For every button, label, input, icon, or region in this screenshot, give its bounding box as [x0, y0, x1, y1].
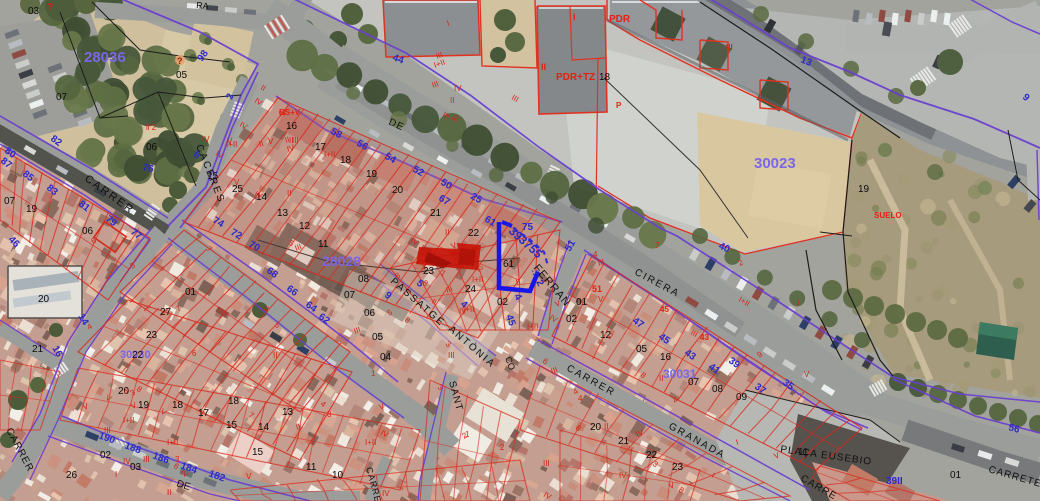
svg-text:20: 20 — [590, 422, 602, 433]
svg-text:08: 08 — [712, 384, 724, 395]
svg-text:21: 21 — [430, 208, 442, 219]
svg-text:1: 1 — [465, 430, 470, 439]
svg-text:13: 13 — [282, 407, 294, 418]
svg-text:I: I — [115, 470, 117, 479]
svg-text:01: 01 — [185, 287, 197, 298]
svg-text:10: 10 — [332, 470, 344, 481]
svg-text:I+II: I+II — [365, 438, 376, 447]
svg-text:V: V — [598, 295, 604, 304]
svg-text:4: 4 — [578, 394, 583, 403]
svg-text:05: 05 — [176, 70, 188, 81]
svg-text:V: V — [804, 370, 810, 379]
svg-text:II: II — [450, 96, 454, 105]
svg-text:4: 4 — [593, 250, 598, 259]
svg-text:61: 61 — [503, 259, 515, 270]
svg-text:15: 15 — [252, 447, 264, 458]
svg-text:IV: IV — [123, 457, 131, 466]
svg-text:21: 21 — [32, 344, 44, 355]
svg-text:26: 26 — [66, 470, 78, 481]
svg-text:11: 11 — [318, 239, 329, 250]
svg-text:18: 18 — [599, 72, 611, 83]
svg-text:06: 06 — [364, 308, 376, 319]
svg-text:1: 1 — [371, 369, 376, 378]
svg-text:28036: 28036 — [84, 49, 126, 66]
svg-text:IV: IV — [454, 84, 462, 93]
svg-text:6: 6 — [192, 349, 197, 358]
svg-text:17: 17 — [198, 408, 210, 419]
svg-text:01: 01 — [950, 470, 962, 481]
svg-text:05: 05 — [636, 344, 648, 355]
svg-text:13: 13 — [277, 208, 289, 219]
svg-text:16: 16 — [286, 121, 298, 132]
svg-text:3: 3 — [175, 455, 180, 464]
svg-text:IV: IV — [619, 471, 627, 480]
svg-text:19: 19 — [366, 169, 378, 180]
svg-text:06: 06 — [146, 142, 158, 153]
svg-text:V: V — [246, 472, 252, 481]
svg-text:V: V — [268, 137, 274, 146]
svg-text:I: I — [573, 12, 576, 22]
svg-text:8: 8 — [327, 410, 332, 419]
svg-text:II: II — [445, 228, 449, 237]
svg-text:03: 03 — [130, 462, 142, 473]
svg-text:20: 20 — [392, 185, 404, 196]
svg-text:I: I — [797, 299, 799, 308]
svg-text:I+II: I+II — [324, 150, 335, 159]
svg-text:IV: IV — [382, 489, 390, 498]
svg-text:11: 11 — [306, 462, 317, 473]
svg-text:04: 04 — [380, 352, 392, 363]
svg-text:III: III — [104, 426, 111, 435]
svg-text:07: 07 — [4, 196, 16, 207]
svg-text:23: 23 — [146, 330, 158, 341]
svg-text:?: ? — [47, 2, 53, 13]
svg-text:24: 24 — [465, 284, 477, 295]
svg-text:06: 06 — [82, 226, 94, 237]
svg-text:02: 02 — [566, 314, 578, 325]
svg-text:07: 07 — [56, 92, 68, 103]
svg-text:II: II — [604, 422, 608, 431]
svg-text:I+II: I+II — [463, 305, 474, 314]
svg-text:7: 7 — [655, 241, 660, 250]
svg-text:II: II — [659, 374, 663, 383]
svg-text:II: II — [167, 488, 171, 497]
svg-text:07: 07 — [688, 377, 700, 388]
svg-text:07: 07 — [344, 290, 356, 301]
svg-text:II: II — [273, 351, 277, 360]
svg-text:II: II — [287, 189, 291, 198]
svg-text:I+II: I+II — [527, 322, 538, 331]
svg-text:19: 19 — [858, 184, 870, 195]
svg-text:III: III — [543, 459, 550, 468]
svg-text:03: 03 — [28, 6, 40, 17]
svg-text:08: 08 — [358, 274, 370, 285]
svg-text:14: 14 — [258, 422, 270, 433]
svg-text:2: 2 — [500, 443, 505, 452]
svg-text:III: III — [726, 43, 733, 52]
svg-text:02: 02 — [497, 297, 509, 308]
svg-text:19: 19 — [138, 400, 150, 411]
svg-text:IV: IV — [202, 135, 210, 144]
svg-text:V: V — [227, 137, 233, 146]
svg-text:?: ? — [177, 56, 183, 66]
svg-text:22: 22 — [468, 228, 480, 239]
svg-text:39II: 39II — [886, 476, 903, 487]
svg-text:20: 20 — [38, 294, 50, 305]
svg-text:09: 09 — [736, 392, 748, 403]
svg-text:SUELO: SUELO — [874, 211, 902, 220]
svg-text:18: 18 — [228, 396, 240, 407]
svg-text:11: 11 — [798, 447, 809, 458]
svg-text:15: 15 — [207, 171, 219, 182]
svg-text:28028: 28028 — [322, 253, 361, 269]
svg-text:45: 45 — [660, 305, 669, 314]
svg-text:PDR+TZ: PDR+TZ — [556, 72, 595, 83]
svg-text:27: 27 — [160, 307, 172, 318]
svg-text:21: 21 — [618, 436, 630, 447]
svg-text:01: 01 — [576, 297, 588, 308]
svg-text:30023: 30023 — [754, 155, 796, 172]
svg-text:19: 19 — [26, 204, 38, 215]
svg-text:12: 12 — [299, 221, 311, 232]
svg-text:P: P — [616, 101, 622, 110]
svg-text:18: 18 — [340, 155, 352, 166]
svg-text:PDR: PDR — [609, 14, 631, 25]
svg-text:III: III — [448, 351, 455, 360]
svg-text:02: 02 — [100, 450, 112, 461]
svg-text:I+II: I+II — [167, 438, 178, 447]
svg-text:23: 23 — [672, 462, 684, 473]
svg-text:V: V — [234, 178, 240, 187]
svg-text:ll 2: ll 2 — [146, 123, 157, 132]
svg-text:III: III — [143, 455, 150, 464]
svg-text:51: 51 — [592, 284, 602, 294]
svg-text:43: 43 — [700, 333, 709, 342]
svg-text:RA: RA — [196, 0, 209, 11]
svg-text:05: 05 — [372, 332, 384, 343]
svg-text:18: 18 — [172, 400, 184, 411]
svg-text:16: 16 — [660, 352, 672, 363]
svg-text:22: 22 — [132, 350, 144, 361]
svg-text:I+II: I+II — [472, 275, 483, 284]
svg-text:II: II — [541, 62, 546, 72]
svg-text:I+II: I+II — [123, 416, 134, 425]
svg-text:15: 15 — [226, 420, 238, 431]
